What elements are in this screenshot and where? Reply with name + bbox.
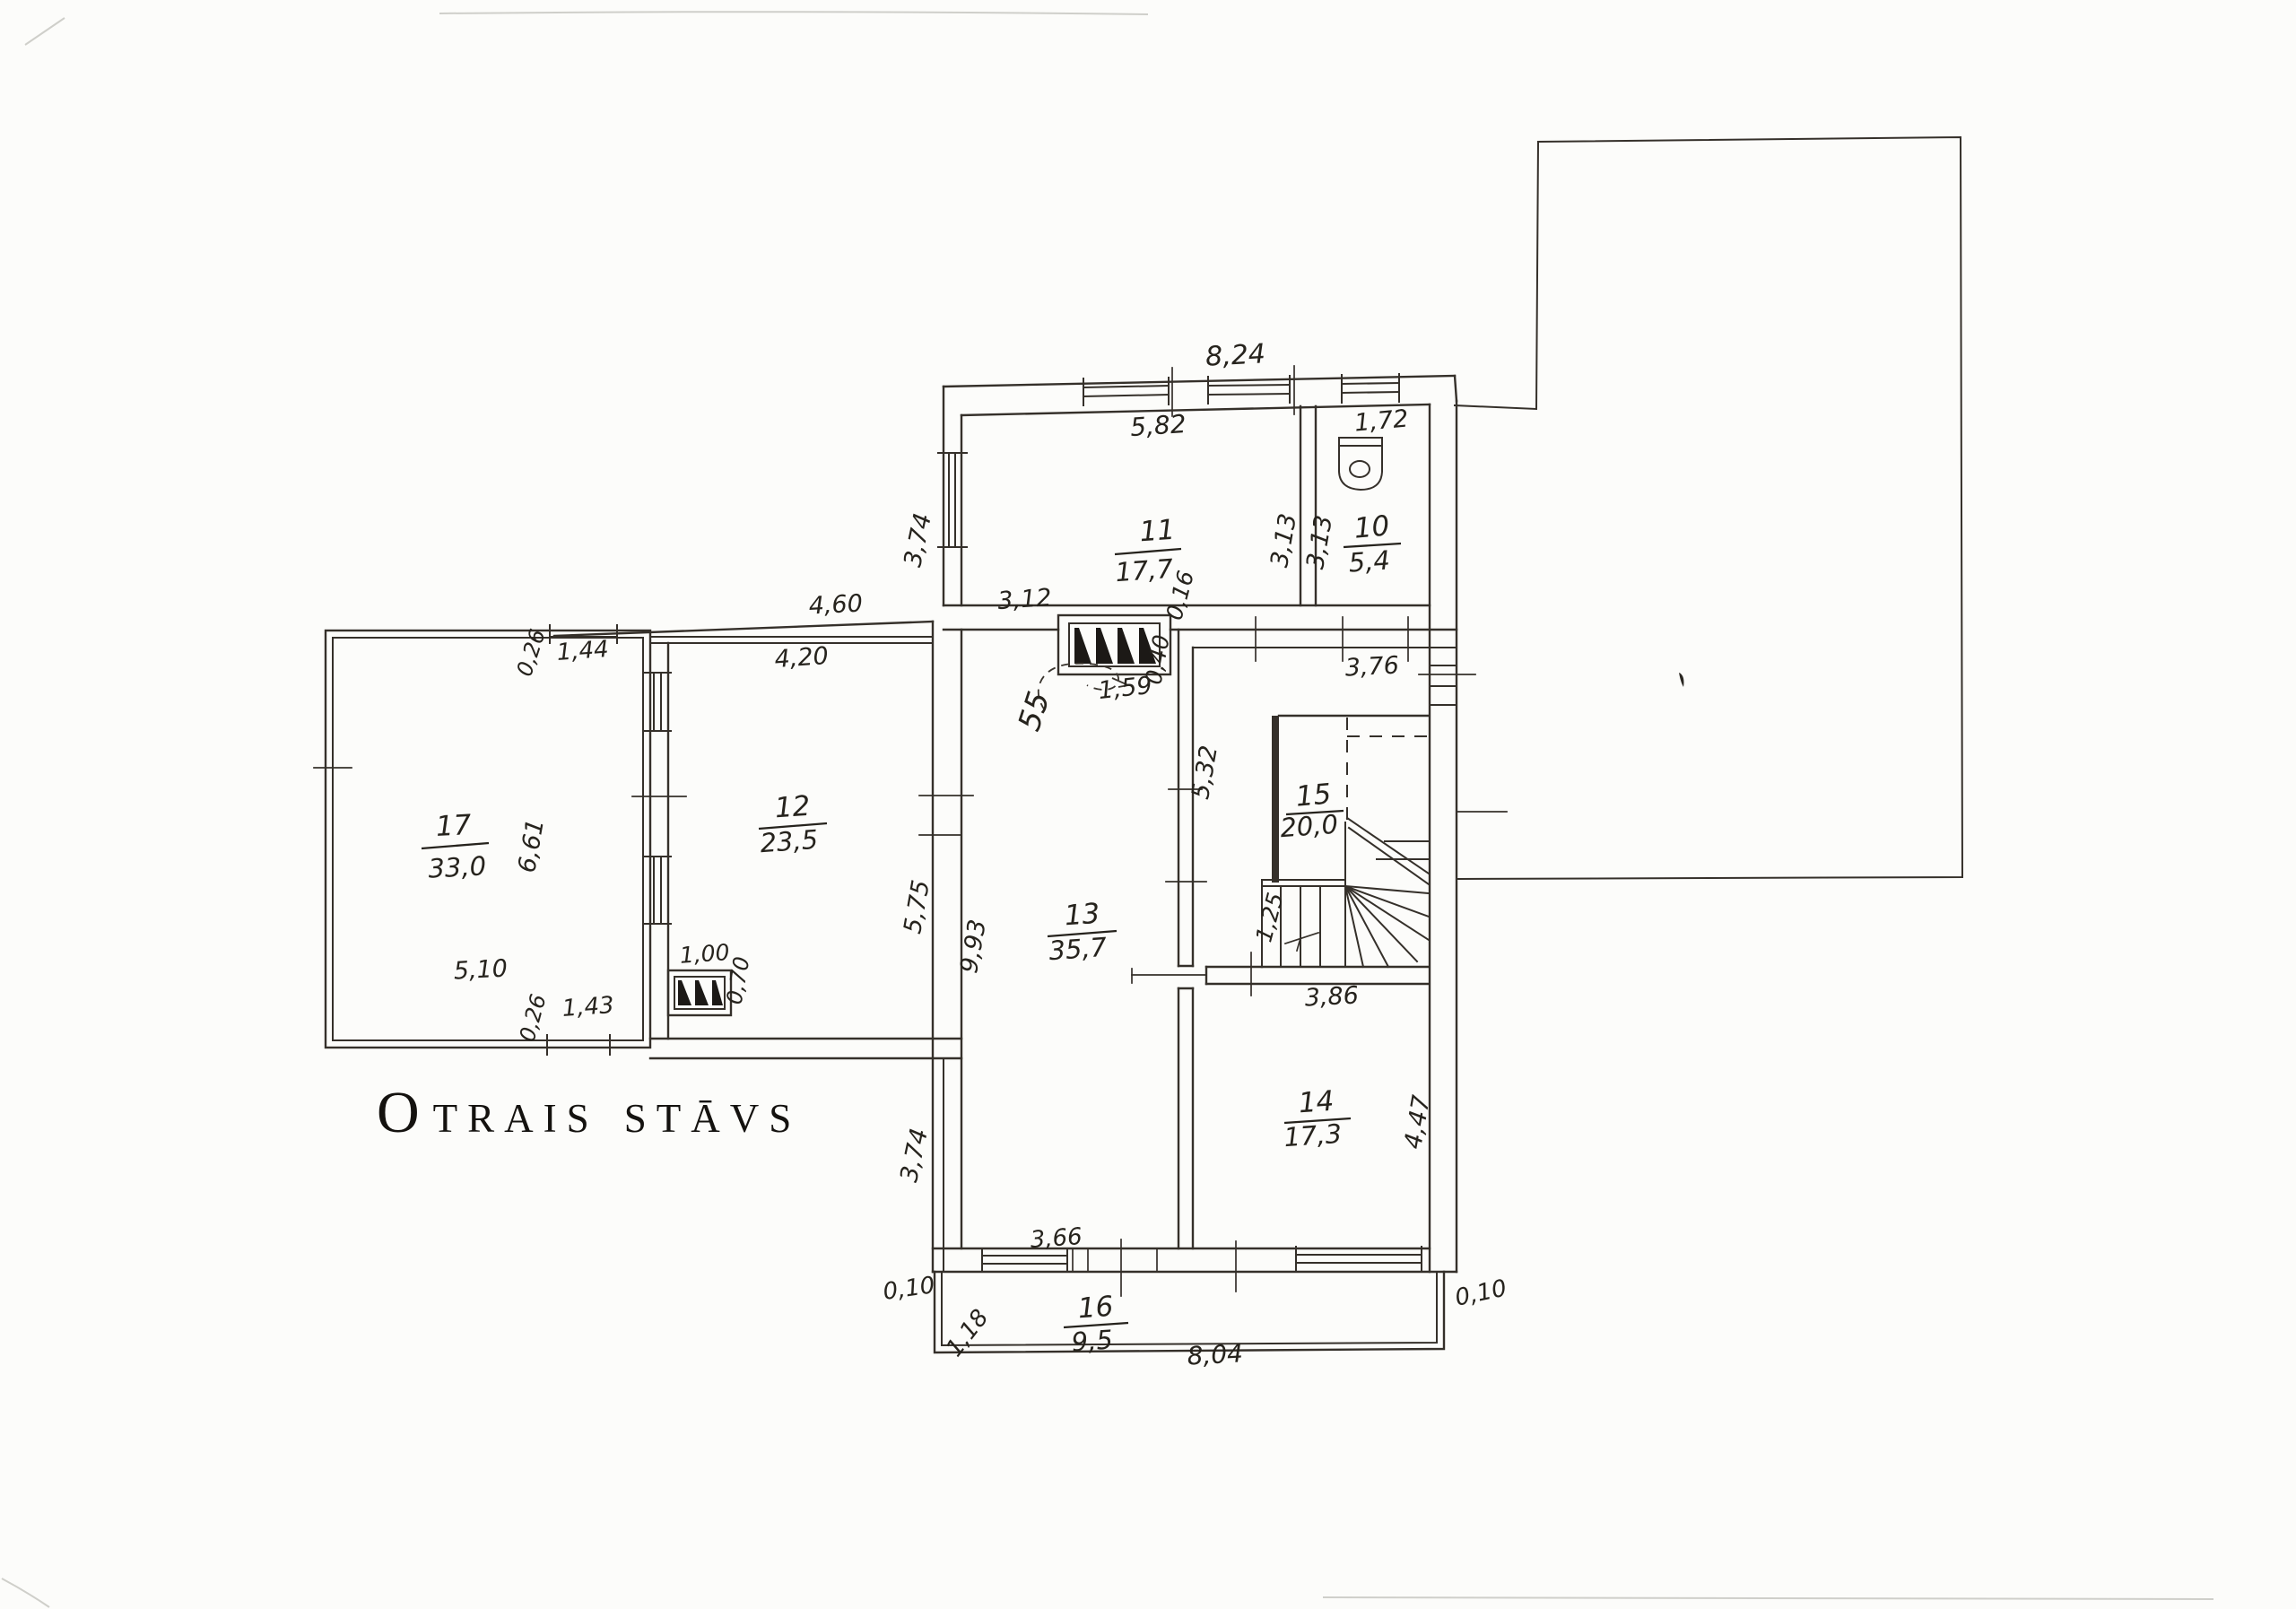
dim-r13-bottom: 3,66 — [1030, 1223, 1083, 1254]
room-label-10: 10 5,4 — [1344, 509, 1401, 578]
scanned-floor-plan-page: 55 11 17,7 10 5,4 17 33,0 12 23,5 13 35,… — [0, 0, 2296, 1609]
dim-wc-depth: 3,13 — [1301, 513, 1338, 571]
dim-r17-window-bottom: 1,43 — [561, 992, 615, 1022]
window-east-wall — [1419, 648, 1475, 705]
svg-text:17,7: 17,7 — [1114, 553, 1174, 587]
svg-text:23,5: 23,5 — [759, 824, 819, 858]
dim-corridor-len: 4,60 — [808, 589, 864, 620]
svg-text:20,0: 20,0 — [1279, 809, 1339, 843]
room-label-15: 15 20,0 — [1279, 778, 1344, 843]
radiator-hatch-small — [668, 970, 731, 1015]
dim-r12-window: 1,00 — [679, 939, 731, 969]
room-label-12: 12 23,5 — [759, 790, 827, 859]
dim-r17-offset-bottom: 0,26 — [515, 992, 552, 1045]
window-r17-bottom — [547, 1035, 610, 1055]
room-label-17: 17 33,0 — [422, 809, 489, 884]
plan-title: OTRAISSTĀVS — [377, 1080, 801, 1145]
dim-offset-left: 0,10 — [882, 1272, 937, 1306]
svg-text:13: 13 — [1064, 898, 1101, 933]
svg-text:35,7: 35,7 — [1048, 932, 1108, 966]
svg-text:17: 17 — [435, 809, 473, 843]
svg-text:10: 10 — [1352, 509, 1390, 544]
dim-hall-width: 3,76 — [1344, 651, 1400, 682]
floor-plan-drawing: 55 11 17,7 10 5,4 17 33,0 12 23,5 13 35,… — [0, 0, 2296, 1609]
svg-text:5,4: 5,4 — [1348, 544, 1391, 578]
dim-r17-depth: 6,61 — [513, 817, 550, 875]
svg-text:12: 12 — [774, 790, 812, 825]
svg-text:14: 14 — [1298, 1085, 1335, 1120]
toilet-icon — [1339, 438, 1382, 490]
dim-r12-width: 4,20 — [774, 642, 830, 674]
svg-text:11: 11 — [1138, 514, 1176, 549]
ink-speck — [1679, 673, 1683, 687]
dim-offset-right: 0,10 — [1453, 1274, 1509, 1311]
dim-top-width: 8,24 — [1205, 338, 1266, 372]
title-initial: O — [377, 1080, 430, 1145]
svg-text:9,5: 9,5 — [1071, 1324, 1114, 1357]
window-r12-left-2 — [644, 857, 671, 924]
dim-wing-left-wall: 3,74 — [899, 511, 937, 570]
room-label-16: 16 9,5 — [1064, 1291, 1128, 1358]
room-label-14: 14 17,3 — [1283, 1085, 1351, 1153]
dim-stair-width: 1,25 — [1250, 890, 1288, 944]
svg-text:17,3: 17,3 — [1283, 1118, 1343, 1152]
walls — [314, 137, 1962, 1352]
dim-r17-offset-top: 0,26 — [512, 626, 551, 679]
dim-r12-depth: 5,75 — [899, 878, 935, 936]
dim-r13-top: 3,12 — [996, 584, 1052, 615]
dim-r11-width: 5,82 — [1129, 409, 1187, 442]
svg-text:15: 15 — [1294, 778, 1332, 813]
dim-r11-depth: 3,13 — [1265, 511, 1302, 570]
dim-lower-left-wall: 3,74 — [895, 1126, 934, 1184]
note-55: 55 — [1012, 687, 1057, 735]
svg-text:33,0: 33,0 — [428, 850, 487, 883]
dim-r17-window-top: 1,44 — [556, 636, 610, 666]
dim-wc-width: 1,72 — [1353, 404, 1410, 437]
dim-stair-run: 3,86 — [1304, 981, 1360, 1012]
title-word2: STĀVS — [624, 1096, 802, 1141]
dim-r17-width: 5,10 — [453, 954, 509, 985]
window-r12-left-1 — [644, 673, 671, 731]
dim-balcony-len: 8,04 — [1187, 1338, 1244, 1370]
dimension-labels: 8,24 5,82 1,72 3,13 3,13 3,74 4,60 3,12 … — [453, 338, 1509, 1370]
svg-text:16: 16 — [1077, 1291, 1115, 1326]
room-label-13: 13 35,7 — [1048, 898, 1117, 967]
window-bottom-2 — [1296, 1247, 1422, 1272]
title-word1: TRAIS — [433, 1096, 599, 1141]
